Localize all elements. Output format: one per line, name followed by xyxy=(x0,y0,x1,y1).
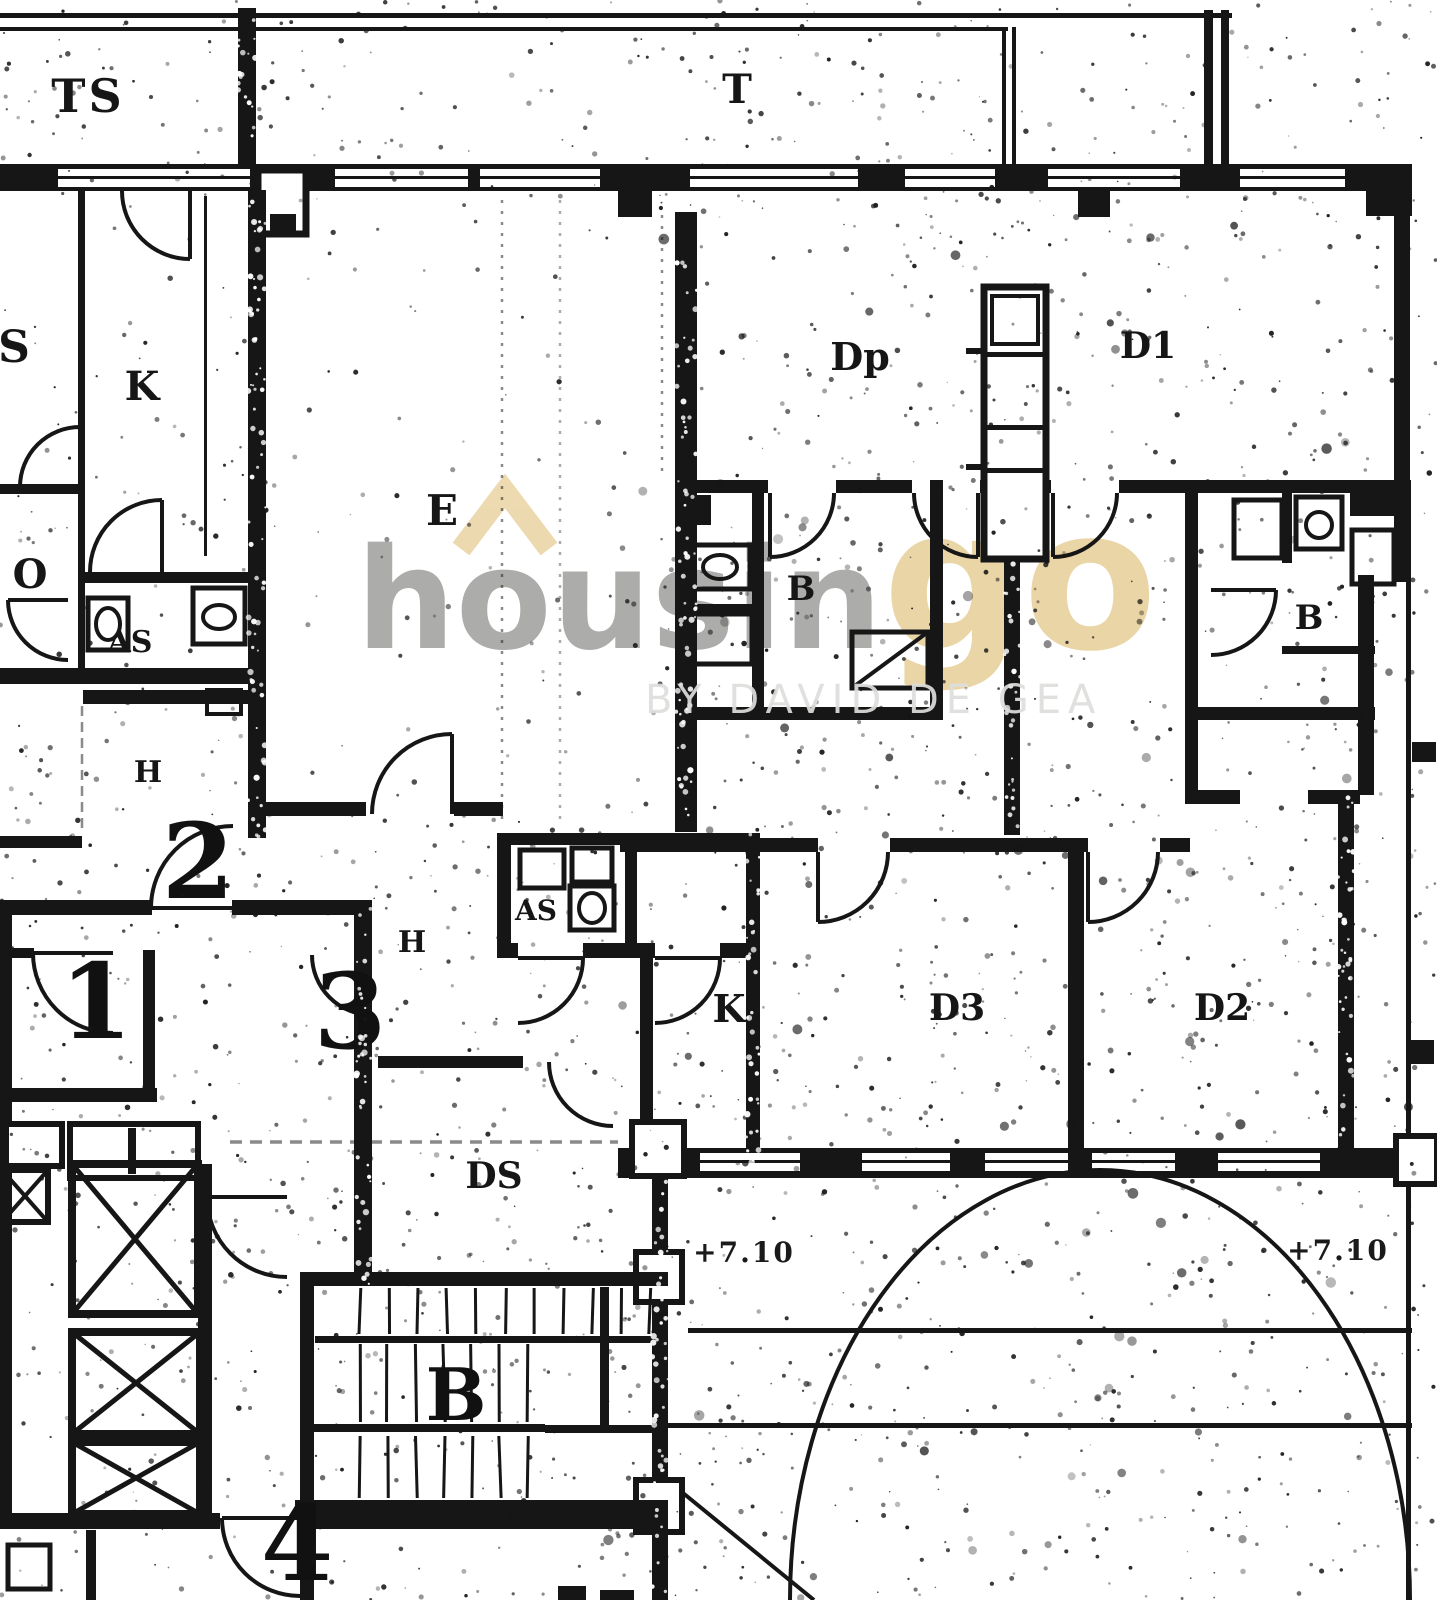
watermark-tagline: BY DAVID DE GEA xyxy=(645,677,1102,723)
room-label-k-left: K xyxy=(125,363,161,410)
room-label-ts: TS xyxy=(51,69,124,123)
apartment-number-2: 2 xyxy=(162,800,234,923)
level-marker-right: +7.10 xyxy=(1287,1234,1389,1267)
apartment-number-1: 1 xyxy=(60,940,132,1063)
room-label-h-left: H xyxy=(134,755,162,790)
apartment-number-4: 4 xyxy=(261,1482,333,1600)
room-label-b-center: B xyxy=(787,569,816,609)
room-label-s: S xyxy=(0,322,30,373)
scanned-floorplan-image: housingo xyxy=(0,0,1437,1600)
floorplan-svg: housingo xyxy=(0,0,1437,1600)
room-label-d2: D2 xyxy=(1194,987,1250,1029)
room-label-as-left: AS xyxy=(107,625,153,660)
stair-mark-b: B xyxy=(426,1352,487,1437)
room-label-as-center: AS xyxy=(514,894,557,927)
room-label-h-center: H xyxy=(398,925,426,960)
room-label-t: T xyxy=(722,66,752,113)
room-label-e: E xyxy=(426,486,458,535)
room-label-ds: DS xyxy=(465,1155,522,1197)
level-marker-left: +7.10 xyxy=(693,1236,795,1269)
room-label-dp: Dp xyxy=(830,334,890,379)
room-label-b-right: B xyxy=(1295,598,1324,638)
room-label-o: O xyxy=(13,551,48,598)
room-label-d3: D3 xyxy=(929,987,985,1029)
room-label-k-center: K xyxy=(712,986,747,1031)
